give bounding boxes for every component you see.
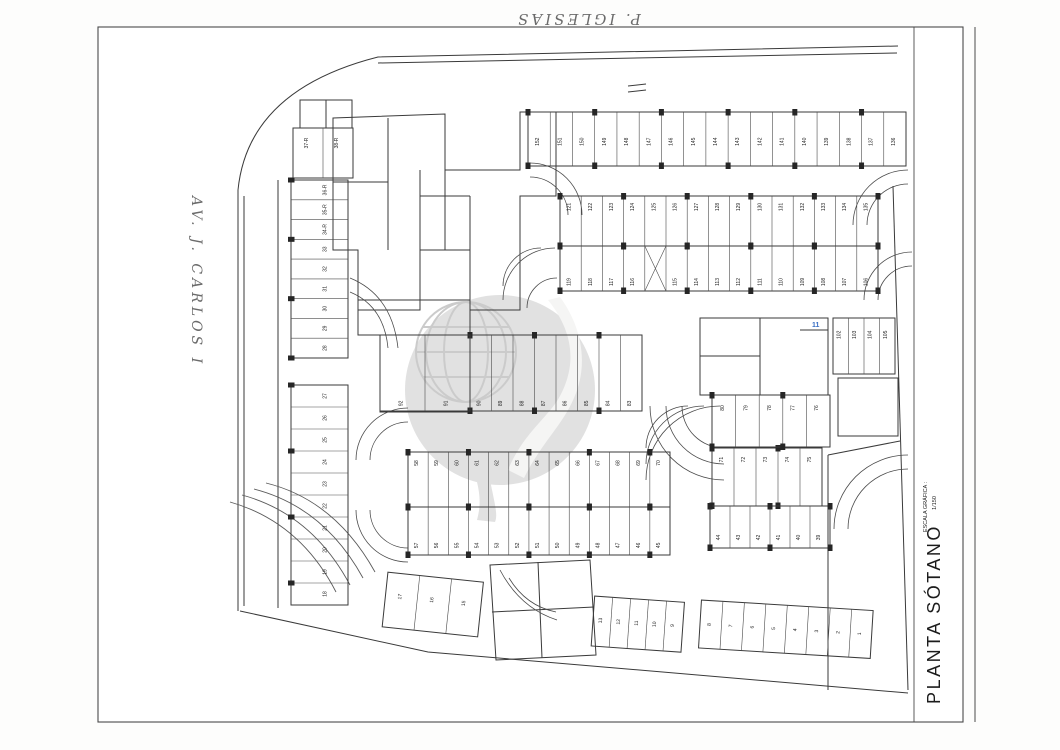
- stall-number: 123: [609, 203, 615, 212]
- column-marker: [406, 504, 411, 511]
- stall-number: 25: [322, 437, 328, 443]
- stall-number: 77: [791, 405, 797, 411]
- stall-number: 45: [656, 542, 662, 548]
- stall-number: 114: [694, 278, 700, 286]
- column-marker: [288, 237, 295, 242]
- stall-number: 70: [656, 460, 662, 466]
- stall-number: 63: [515, 460, 521, 466]
- column-marker: [288, 515, 295, 520]
- column-marker: [288, 296, 295, 301]
- column-marker: [776, 445, 781, 452]
- stall-number: 44: [716, 535, 722, 541]
- scanned-plan-page: 1521511501491481471461451441431421411401…: [0, 0, 1060, 750]
- column-marker: [532, 408, 537, 415]
- stall-number: 108: [821, 278, 827, 287]
- stall-number: 30: [322, 306, 328, 312]
- column-marker: [587, 552, 592, 559]
- stall-number: 144: [713, 137, 719, 146]
- column-marker: [659, 109, 664, 116]
- stall-number: 48: [595, 542, 601, 548]
- stall-number: 19: [322, 569, 328, 575]
- stall-number: 138: [846, 137, 852, 146]
- stall-number: 71: [719, 457, 725, 463]
- stall-number: 50: [555, 542, 561, 548]
- column-marker: [647, 504, 652, 511]
- stall-number: 17: [397, 593, 404, 599]
- column-marker: [748, 288, 753, 295]
- stall-number: 59: [434, 460, 440, 466]
- stall-number: 51: [535, 542, 541, 548]
- column-marker: [859, 109, 864, 116]
- stall-number: 72: [741, 457, 747, 463]
- stall-number: 28: [322, 345, 328, 351]
- column-marker: [526, 552, 531, 559]
- stall-number: 15: [461, 600, 468, 606]
- scale-ratio: 1/150: [932, 496, 938, 510]
- stall-number: 56: [434, 542, 440, 548]
- stall-number: 121: [567, 203, 573, 212]
- stall-number: 129: [736, 203, 742, 212]
- column-marker: [466, 449, 471, 456]
- stall-number: 55: [454, 542, 460, 548]
- stall-number: 12: [616, 619, 622, 625]
- column-marker: [876, 243, 881, 250]
- stall-number: 135: [863, 203, 869, 212]
- stall-number: 117: [609, 278, 615, 286]
- stall-number: 125: [651, 203, 657, 212]
- column-marker: [587, 504, 592, 511]
- column-marker: [876, 193, 881, 200]
- stall-number: 104: [868, 330, 874, 339]
- stall-number: 92: [399, 400, 405, 406]
- stall-number: 13: [598, 617, 604, 623]
- stall-number: 106: [863, 278, 869, 287]
- column-marker: [726, 163, 731, 170]
- stall-number: 78: [767, 405, 773, 411]
- stall-number: 134: [842, 203, 848, 212]
- column-marker: [812, 288, 817, 295]
- column-marker: [466, 552, 471, 559]
- column-marker: [288, 383, 295, 388]
- stall-number: 150: [580, 137, 586, 146]
- floor-plan-canvas: 1521511501491481471461451441431421411401…: [0, 0, 1060, 750]
- stall-number: 32: [322, 266, 328, 272]
- stall-number: 23: [322, 481, 328, 487]
- column-marker: [621, 243, 626, 250]
- stall-number: 34-R: [322, 224, 328, 235]
- stall-number: 131: [779, 203, 785, 212]
- stall-number: 128: [715, 203, 721, 212]
- stall-number: 146: [669, 137, 675, 146]
- stall-number: 148: [624, 137, 630, 146]
- stall-number: 53: [495, 542, 501, 548]
- stall-number: 113: [715, 278, 721, 286]
- stall-number: 149: [602, 137, 608, 146]
- stall-number: 89: [498, 400, 504, 406]
- stall-number: 69: [636, 460, 642, 466]
- stall-number: 139: [824, 137, 830, 146]
- column-marker: [768, 503, 773, 510]
- stall-number: 68: [616, 460, 622, 466]
- column-marker: [780, 392, 785, 399]
- column-marker: [792, 163, 797, 170]
- stall-number: 49: [575, 542, 581, 548]
- stall-number: 40: [796, 535, 802, 541]
- column-marker: [288, 178, 295, 183]
- stall-number: 38-R: [334, 137, 340, 148]
- column-marker: [647, 552, 652, 559]
- stall-number: 10: [652, 621, 658, 627]
- stall-number: 84: [606, 400, 612, 406]
- stall-number: 110: [779, 278, 785, 286]
- column-marker: [685, 193, 690, 200]
- column-marker: [526, 163, 531, 170]
- stall-number: 73: [763, 457, 769, 463]
- column-marker: [876, 288, 881, 295]
- stall-number: 41: [776, 535, 782, 541]
- column-marker: [526, 504, 531, 511]
- column-marker: [288, 449, 295, 454]
- stall-number: 83: [627, 400, 633, 406]
- stall-number: 102: [837, 330, 843, 339]
- stall-number: 76: [814, 405, 820, 411]
- stall-number: 65: [555, 460, 561, 466]
- column-marker: [526, 449, 531, 456]
- stall-number: 61: [475, 460, 481, 466]
- street-label-top: P. IGLESIAS: [515, 10, 642, 28]
- stall-number: 133: [821, 203, 827, 212]
- stall-number: 124: [630, 203, 636, 212]
- stall-number: 27: [322, 393, 328, 399]
- stall-number: 22: [322, 503, 328, 509]
- stall-number: 145: [691, 137, 697, 146]
- stall-number: 86: [563, 400, 569, 406]
- stall-number: 91: [444, 400, 450, 406]
- stall-number: 20: [322, 547, 328, 553]
- column-marker: [812, 243, 817, 250]
- stall-number: 36-R: [322, 184, 328, 195]
- column-marker: [592, 163, 597, 170]
- column-marker: [592, 109, 597, 116]
- stall-number: 105: [883, 330, 889, 339]
- stall-number: 88: [520, 400, 526, 406]
- column-marker: [659, 163, 664, 170]
- stall-number: 43: [736, 535, 742, 541]
- stall-number: 126: [673, 203, 679, 212]
- stall-number: 143: [735, 137, 741, 146]
- stall-number: 111: [757, 278, 763, 286]
- blue-note: 11: [812, 322, 820, 329]
- stall-number: 21: [322, 525, 328, 531]
- stall-number: 46: [636, 542, 642, 548]
- stall-number: 137: [869, 137, 875, 146]
- street-label-left: AV. J. CARLOS I: [188, 194, 204, 367]
- stall-number: 140: [802, 137, 808, 146]
- stall-number: 127: [694, 203, 700, 212]
- stall-number: 67: [595, 460, 601, 466]
- column-marker: [526, 109, 531, 116]
- column-marker: [647, 449, 652, 456]
- stall-number: 52: [515, 542, 521, 548]
- column-marker: [466, 504, 471, 511]
- stall-number: 115: [673, 278, 679, 286]
- column-marker: [288, 356, 295, 361]
- column-marker: [558, 288, 563, 295]
- column-marker: [780, 444, 785, 451]
- stall-number: 116: [630, 278, 636, 286]
- column-marker: [726, 109, 731, 116]
- column-marker: [812, 193, 817, 200]
- column-marker: [406, 552, 411, 559]
- stall-number: 74: [785, 457, 791, 463]
- stall-number: 26: [322, 415, 328, 421]
- stall-number: 18: [322, 591, 328, 597]
- stall-number: 75: [807, 457, 813, 463]
- stall-number: 85: [584, 400, 590, 406]
- stall-number: 90: [477, 400, 483, 406]
- column-marker: [710, 392, 715, 399]
- stall-number: 130: [757, 203, 763, 212]
- stall-number: 24: [322, 459, 328, 465]
- column-marker: [597, 332, 602, 339]
- stall-number: 142: [757, 137, 763, 146]
- stall-number: 119: [567, 278, 573, 286]
- column-marker: [792, 109, 797, 116]
- column-marker: [685, 288, 690, 295]
- column-marker: [288, 581, 295, 586]
- stall-number: 147: [646, 137, 652, 146]
- stall-number: 47: [616, 542, 622, 548]
- stall-number: 31: [322, 286, 328, 292]
- stall-number: 37-R: [304, 137, 310, 148]
- plan-title: PLANTA SÓTANO: [923, 524, 944, 704]
- stall-number: 16: [429, 597, 436, 603]
- stall-number: 103: [852, 330, 858, 339]
- column-marker: [685, 243, 690, 250]
- column-marker: [621, 288, 626, 295]
- stall-number: 141: [780, 137, 786, 146]
- stall-number: 54: [475, 542, 481, 548]
- column-marker: [748, 243, 753, 250]
- column-marker: [597, 408, 602, 415]
- column-marker: [768, 545, 773, 552]
- column-marker: [558, 193, 563, 200]
- stall-number: 132: [800, 203, 806, 212]
- column-marker: [532, 332, 537, 339]
- stall-number: 80: [720, 405, 726, 411]
- stall-number: 64: [535, 460, 541, 466]
- column-marker: [748, 193, 753, 200]
- stall-number: 136: [891, 137, 897, 146]
- stall-number: 107: [842, 278, 848, 287]
- column-marker: [587, 449, 592, 456]
- stall-number: 112: [736, 278, 742, 286]
- stall-number: 33: [322, 246, 328, 252]
- stall-number: 11: [634, 620, 640, 626]
- stall-number: 42: [756, 535, 762, 541]
- column-marker: [710, 444, 715, 451]
- stall-number: 62: [495, 460, 501, 466]
- stall-number: 118: [588, 278, 594, 286]
- column-marker: [828, 545, 833, 552]
- stall-number: 109: [800, 278, 806, 287]
- stall-number: 87: [541, 400, 547, 406]
- column-marker: [859, 163, 864, 170]
- stall-number: 152: [535, 137, 541, 146]
- stall-number: 29: [322, 325, 328, 331]
- column-marker: [708, 503, 713, 510]
- column-marker: [828, 503, 833, 510]
- column-marker: [621, 193, 626, 200]
- stall-number: 35-R: [322, 204, 328, 215]
- stall-number: 39: [816, 535, 822, 541]
- stall-number: 66: [575, 460, 581, 466]
- column-marker: [708, 545, 713, 552]
- stall-number: 151: [557, 137, 563, 146]
- stall-number: 79: [743, 405, 749, 411]
- stall-number: 57: [414, 542, 420, 548]
- stall-number: 60: [454, 460, 460, 466]
- column-marker: [558, 243, 563, 250]
- stall-number: 122: [588, 203, 594, 212]
- stall-number: 58: [414, 460, 420, 466]
- column-marker: [406, 449, 411, 456]
